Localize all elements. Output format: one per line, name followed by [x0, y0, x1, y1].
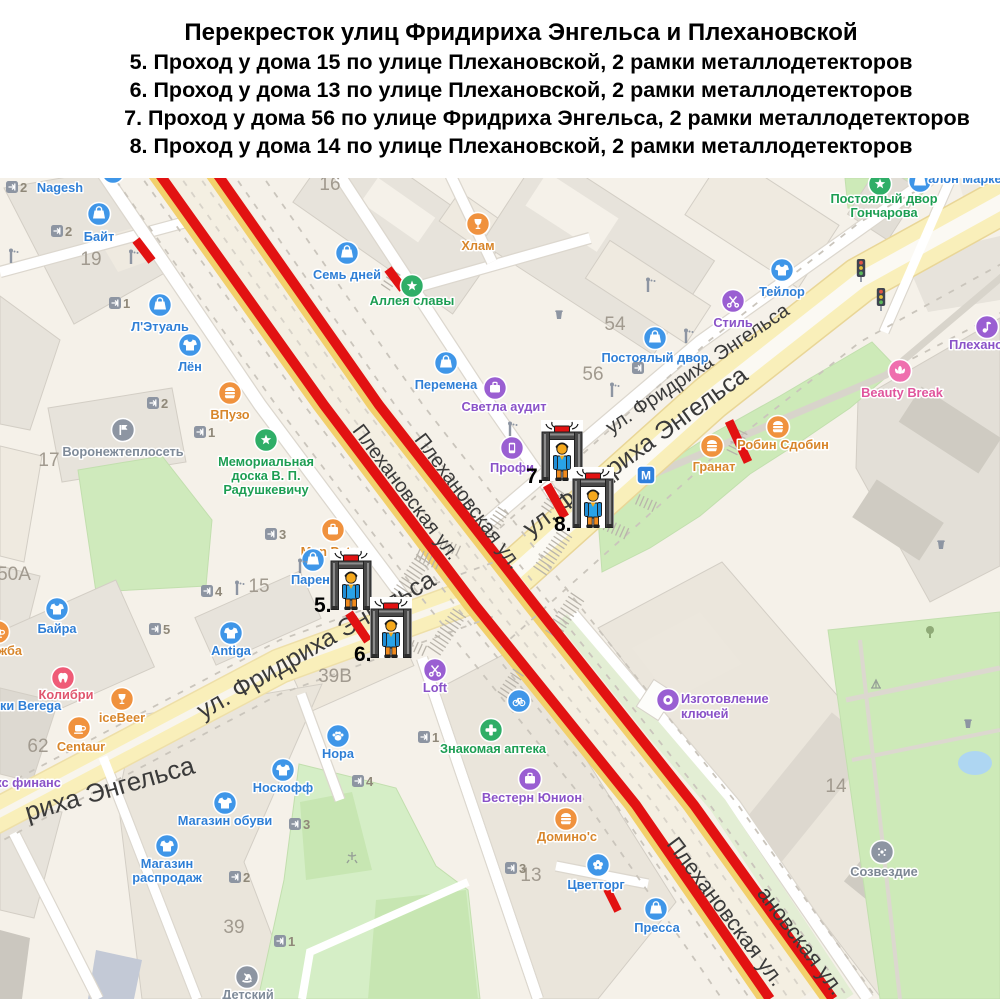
- svg-text:Изготовление: Изготовление: [681, 691, 769, 706]
- svg-text:Семь дней: Семь дней: [313, 267, 381, 282]
- svg-text:Вестерн Юнион: Вестерн Юнион: [482, 790, 582, 805]
- svg-text:Акс финанс: Акс финанс: [0, 775, 61, 790]
- svg-text:Домино'с: Домино'с: [537, 829, 597, 844]
- svg-text:Beauty Break: Beauty Break: [861, 385, 944, 400]
- svg-text:1: 1: [208, 425, 215, 440]
- svg-text:Постоялый двор: Постоялый двор: [601, 350, 708, 365]
- svg-text:ки Berega: ки Berega: [0, 698, 62, 713]
- svg-text:доска В. П.: доска В. П.: [231, 468, 300, 483]
- svg-text:56: 56: [582, 364, 603, 385]
- svg-text:Стиль: Стиль: [713, 315, 753, 330]
- svg-text:5: 5: [163, 622, 170, 637]
- svg-text:М: М: [641, 469, 651, 483]
- svg-text:7.: 7.: [526, 465, 544, 488]
- svg-text:54: 54: [604, 314, 626, 335]
- svg-text:Робин Сдобин: Робин Сдобин: [737, 437, 829, 452]
- svg-text:жба: жба: [0, 643, 23, 658]
- svg-text:39В: 39В: [318, 666, 352, 687]
- svg-text:ВПузо: ВПузо: [210, 407, 249, 422]
- svg-text:15: 15: [248, 576, 269, 597]
- svg-text:2: 2: [65, 224, 72, 239]
- svg-text:2: 2: [161, 396, 168, 411]
- svg-text:4: 4: [215, 584, 223, 599]
- svg-text:19: 19: [80, 249, 101, 270]
- svg-text:3: 3: [279, 527, 286, 542]
- svg-text:Тейлор: Тейлор: [759, 284, 805, 299]
- svg-text:1: 1: [123, 296, 130, 311]
- svg-text:Centaur: Centaur: [57, 739, 105, 754]
- svg-text:Созвездие: Созвездие: [850, 864, 918, 879]
- svg-text:Байра: Байра: [37, 621, 77, 636]
- svg-text:Хлам: Хлам: [461, 238, 494, 253]
- svg-text:Лён: Лён: [178, 359, 202, 374]
- svg-text:распродаж: распродаж: [132, 870, 202, 885]
- svg-text:Плеханов: Плеханов: [949, 337, 1000, 352]
- svg-text:1: 1: [432, 730, 439, 745]
- svg-text:17: 17: [38, 450, 59, 471]
- svg-text:8.: 8.: [554, 513, 572, 536]
- svg-text:5.: 5.: [314, 594, 332, 617]
- svg-text:62: 62: [27, 736, 48, 757]
- svg-text:3: 3: [519, 861, 526, 876]
- svg-text:14: 14: [825, 776, 847, 797]
- svg-text:2: 2: [20, 180, 27, 195]
- svg-text:Аллея славы: Аллея славы: [370, 293, 455, 308]
- svg-text:4: 4: [366, 774, 374, 789]
- svg-text:50А: 50А: [0, 564, 31, 585]
- svg-text:39: 39: [223, 917, 244, 938]
- svg-text:Постоялый двор: Постоялый двор: [830, 191, 937, 206]
- svg-text:2: 2: [243, 870, 250, 885]
- svg-text:Нора: Нора: [322, 746, 355, 761]
- svg-text:Antiga: Antiga: [211, 643, 252, 658]
- svg-text:алон Маркет: алон Маркет: [928, 171, 1000, 186]
- svg-text:Перемена: Перемена: [415, 377, 478, 392]
- svg-text:Знакомая аптека: Знакомая аптека: [440, 741, 547, 756]
- svg-text:Носкофф: Носкофф: [253, 780, 313, 795]
- svg-text:Цветторг: Цветторг: [567, 877, 624, 892]
- svg-text:Мемориальная: Мемориальная: [218, 454, 314, 469]
- svg-text:iceBeer: iceBeer: [99, 710, 145, 725]
- svg-text:Светла аудит: Светла аудит: [462, 399, 547, 414]
- svg-text:Пресса: Пресса: [634, 920, 680, 935]
- svg-text:Магазин обуви: Магазин обуви: [178, 813, 272, 828]
- svg-text:Детский: Детский: [222, 987, 274, 999]
- svg-text:Воронежтеплосеть: Воронежтеплосеть: [62, 444, 183, 459]
- svg-text:Loft: Loft: [423, 680, 448, 695]
- svg-text:Байт: Байт: [84, 229, 114, 244]
- svg-text:1: 1: [288, 934, 295, 949]
- svg-text:Радушкевичу: Радушкевичу: [223, 482, 309, 497]
- svg-text:ключей: ключей: [681, 706, 729, 721]
- svg-text:16: 16: [319, 174, 340, 195]
- svg-text:Магазин: Магазин: [141, 856, 194, 871]
- svg-text:Гончарова: Гончарова: [850, 205, 918, 220]
- svg-text:6.: 6.: [354, 643, 372, 666]
- svg-text:Nagesh: Nagesh: [37, 180, 83, 195]
- svg-text:3: 3: [303, 817, 310, 832]
- svg-text:Л'Этуаль: Л'Этуаль: [131, 319, 189, 334]
- svg-text:Гранат: Гранат: [693, 459, 736, 474]
